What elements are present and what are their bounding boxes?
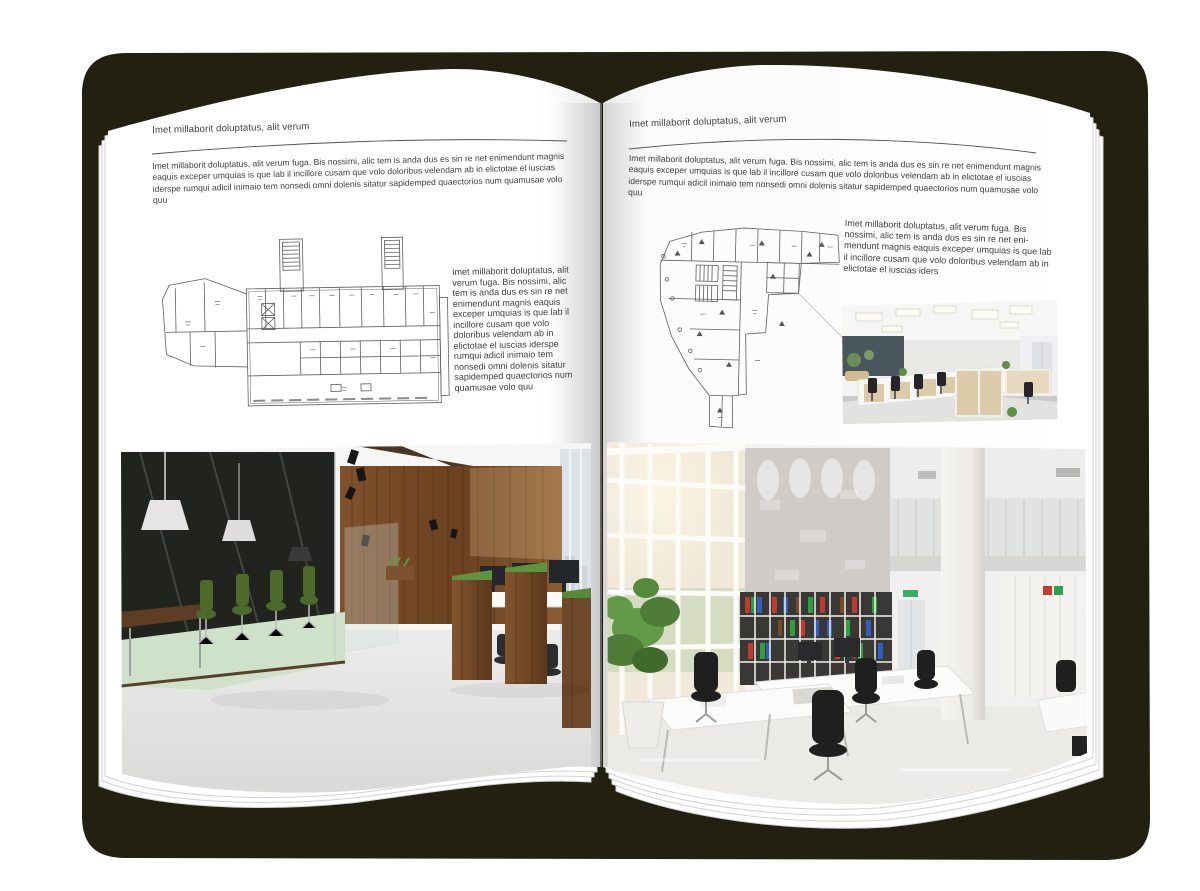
right-page-sidebar-text: Imet millaborit doluptatus, alit verum f… bbox=[843, 218, 1057, 281]
magazine-mockup: Imet millaborit doluptatus, alit verum I… bbox=[0, 0, 1200, 891]
left-photo-office-wood bbox=[121, 443, 591, 795]
right-photo-office-small bbox=[840, 298, 1060, 426]
right-page-intro: Imet millaborit doluptatus, alit verum f… bbox=[628, 153, 1045, 208]
right-photo-office-atrium bbox=[560, 406, 1090, 810]
left-page-sidebar-text: Imet millaborit doluptatus, alit verum f… bbox=[452, 264, 585, 393]
